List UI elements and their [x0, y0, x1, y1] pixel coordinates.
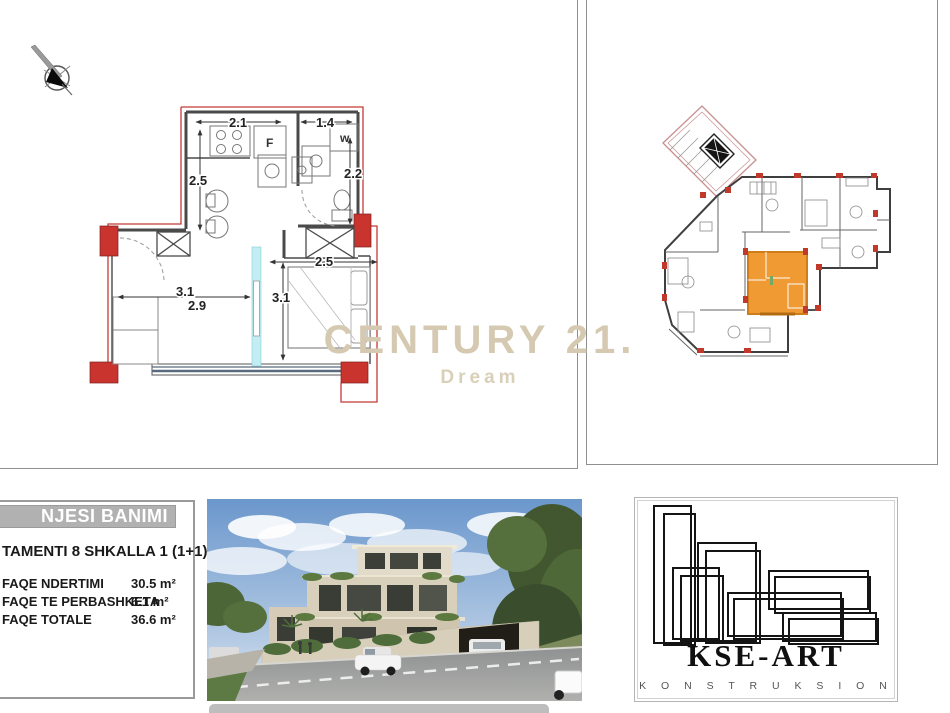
fridge-label: F: [266, 136, 273, 150]
area-value: 30.5 m²: [131, 576, 176, 594]
sofa: [113, 297, 158, 364]
info-title-bar: NJESI BANIMI: [0, 505, 176, 528]
area-label: FAQE NDERTIMI: [0, 576, 131, 594]
area-value: 6.1 m²: [131, 594, 169, 612]
logo-subtitle: K O N S T R U K S I O N: [635, 680, 897, 692]
unit-floor-plan: F w: [80, 95, 400, 405]
highlighted-unit: [748, 252, 807, 314]
logo-name: KSE-ART: [635, 638, 897, 674]
area-row-ndertimi: FAQE NDERTIMI 30.5 m²: [0, 576, 193, 594]
dim-bedroom-width: 2.5: [315, 254, 333, 269]
building-floor-plan: [650, 100, 900, 365]
area-label: FAQE TE PERBASHKETA: [0, 594, 131, 612]
dim-bath-width: 1.4: [316, 115, 335, 130]
dim-bedroom-depth: 3.1: [272, 290, 290, 305]
area-row-totale: FAQE TOTALE 36.6 m²: [0, 612, 193, 630]
window-band: [152, 364, 342, 375]
washer-label: w: [339, 131, 350, 145]
dim-kitchen-depth: 2.5: [189, 173, 207, 188]
kse-art-frames-logo: [635, 498, 897, 648]
building-render: [207, 499, 582, 701]
kitchen-bath-fixtures: [206, 124, 358, 238]
dim-living-width2: 2.9: [188, 298, 206, 313]
area-label: FAQE TOTALE: [0, 612, 131, 630]
bed: [288, 267, 370, 348]
area-value: 36.6 m²: [131, 612, 176, 630]
dim-bath-depth: 2.2: [344, 166, 362, 181]
area-rows: FAQE NDERTIMI 30.5 m² FAQE TE PERBASHKET…: [0, 576, 193, 630]
sliding-door-cyan: [252, 247, 261, 366]
building-photo: [207, 499, 582, 701]
listing-sheet: F w: [0, 0, 950, 713]
dim-living-width: 3.1: [176, 284, 194, 299]
unit-info-panel: NJESI BANIMI TAMENTI 8 SHKALLA 1 (1+1) F…: [0, 500, 195, 699]
apartment-subtitle: TAMENTI 8 SHKALLA 1 (1+1): [0, 543, 193, 560]
area-row-perbashketa: FAQE TE PERBASHKETA 6.1 m²: [0, 594, 193, 612]
north-arrow-icon: [25, 40, 80, 100]
constructor-logo-panel: KSE-ART K O N S T R U K S I O N: [634, 497, 898, 702]
dim-kitchen-width: 2.1: [229, 115, 247, 130]
bottom-edge-strip: [209, 704, 549, 713]
